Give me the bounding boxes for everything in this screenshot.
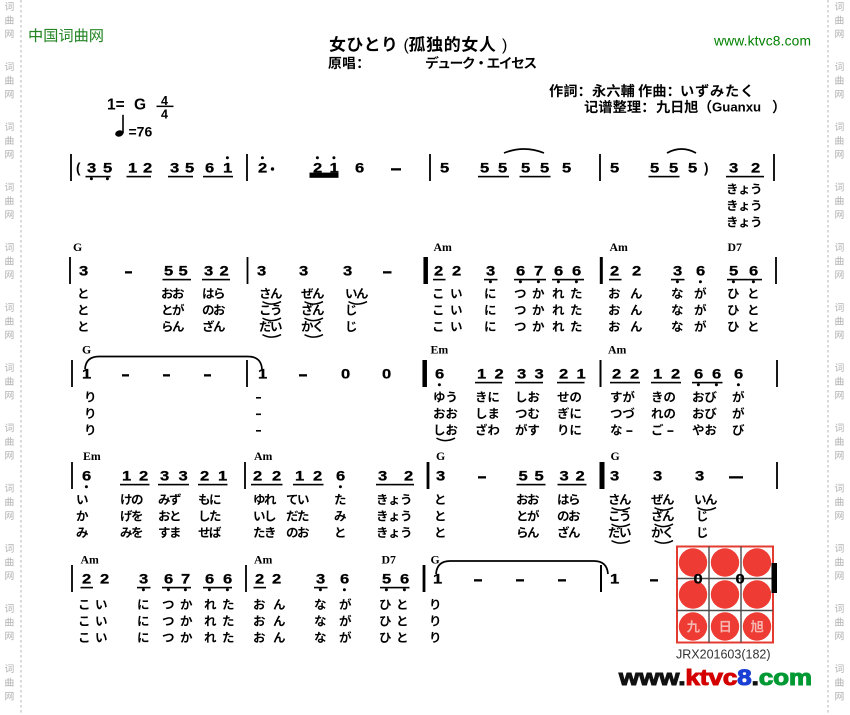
svg-text:3: 3 — [729, 160, 738, 176]
svg-text:(: ( — [76, 161, 81, 176]
svg-text:2: 2 — [200, 468, 209, 484]
svg-text:G: G — [82, 343, 91, 357]
svg-text:3: 3 — [560, 468, 569, 484]
svg-text:5: 5 — [540, 160, 549, 176]
svg-text:3: 3 — [87, 160, 96, 176]
svg-text:0: 0 — [736, 571, 745, 587]
svg-text:Am: Am — [81, 553, 100, 567]
svg-text:6: 6 — [340, 571, 349, 587]
svg-text:G: G — [436, 449, 445, 463]
svg-text:Am: Am — [254, 449, 273, 463]
svg-text:D7: D7 — [382, 553, 397, 567]
svg-text:G: G — [431, 553, 440, 567]
svg-text:3: 3 — [316, 571, 325, 587]
svg-text:7: 7 — [534, 263, 543, 279]
svg-text:1: 1 — [610, 571, 619, 587]
svg-text:2: 2 — [452, 263, 461, 279]
svg-text:Em: Em — [83, 449, 101, 463]
svg-text:5: 5 — [185, 160, 194, 176]
svg-text:www.ktvc8.com: www.ktvc8.com — [713, 34, 811, 49]
svg-text:2: 2 — [632, 263, 641, 279]
svg-text:2: 2 — [751, 160, 760, 176]
svg-text:6: 6 — [205, 571, 214, 587]
svg-text:3: 3 — [179, 468, 188, 484]
svg-text:=76: =76 — [129, 124, 153, 140]
svg-text:6: 6 — [712, 366, 721, 382]
svg-text:5: 5 — [382, 571, 391, 587]
svg-text:3: 3 — [257, 263, 266, 279]
svg-text:5: 5 — [498, 160, 507, 176]
svg-text:1: 1 — [258, 366, 267, 382]
svg-text:5: 5 — [480, 160, 489, 176]
svg-text:2: 2 — [612, 366, 621, 382]
svg-text:3: 3 — [673, 263, 682, 279]
svg-text:G: G — [134, 96, 146, 113]
svg-text:5: 5 — [610, 160, 619, 176]
svg-text:1: 1 — [128, 160, 137, 176]
svg-text:1: 1 — [122, 468, 131, 484]
svg-text:2: 2 — [255, 571, 264, 587]
svg-text:3: 3 — [695, 468, 704, 484]
svg-text:(: ( — [404, 37, 410, 54]
svg-text:Am: Am — [434, 240, 453, 254]
svg-text:www.ktvc8.com: www.ktvc8.com — [618, 665, 812, 690]
svg-text:6: 6 — [516, 263, 525, 279]
svg-text:2: 2 — [434, 263, 443, 279]
svg-text:1: 1 — [477, 366, 486, 382]
svg-text:6: 6 — [223, 571, 232, 587]
svg-text:3: 3 — [535, 366, 544, 382]
svg-text:5: 5 — [535, 468, 544, 484]
svg-text:3: 3 — [653, 468, 662, 484]
svg-text:5: 5 — [179, 263, 188, 279]
svg-text:2: 2 — [313, 468, 322, 484]
svg-text:2: 2 — [100, 571, 109, 587]
svg-text:2: 2 — [630, 366, 639, 382]
svg-text:5: 5 — [164, 263, 173, 279]
svg-text:3: 3 — [378, 468, 387, 484]
svg-text:2: 2 — [559, 366, 568, 382]
svg-text:1: 1 — [218, 468, 227, 484]
svg-text:5: 5 — [519, 468, 528, 484]
svg-text:JRX201603(182): JRX201603(182) — [676, 648, 771, 662]
svg-text:Em: Em — [431, 343, 449, 357]
svg-text:6: 6 — [696, 263, 705, 279]
svg-text:6: 6 — [554, 263, 563, 279]
svg-text:3: 3 — [79, 263, 88, 279]
svg-text:0: 0 — [382, 366, 391, 382]
svg-text:5: 5 — [729, 263, 738, 279]
svg-text:2: 2 — [404, 468, 413, 484]
svg-text:6: 6 — [734, 366, 743, 382]
svg-text:3: 3 — [139, 571, 148, 587]
svg-text:7: 7 — [181, 571, 190, 587]
svg-text:6: 6 — [400, 571, 409, 587]
svg-text:Am: Am — [610, 240, 629, 254]
svg-text:5: 5 — [688, 160, 697, 176]
svg-text:0: 0 — [694, 571, 703, 587]
svg-text:2: 2 — [220, 263, 229, 279]
svg-text:4: 4 — [161, 108, 168, 122]
svg-text:): ) — [502, 37, 507, 54]
svg-text:2: 2 — [139, 468, 148, 484]
svg-text:5: 5 — [562, 160, 571, 176]
svg-text:2: 2 — [272, 468, 281, 484]
svg-text:6: 6 — [572, 263, 581, 279]
svg-text:3: 3 — [160, 468, 169, 484]
svg-text:6: 6 — [749, 263, 758, 279]
svg-text:2: 2 — [576, 468, 585, 484]
svg-text:1: 1 — [577, 366, 586, 382]
svg-text:3: 3 — [299, 263, 308, 279]
svg-text:3: 3 — [343, 263, 352, 279]
svg-text:5: 5 — [440, 160, 449, 176]
svg-text:2: 2 — [272, 571, 281, 587]
svg-text:2: 2 — [258, 160, 267, 176]
svg-text:5: 5 — [103, 160, 112, 176]
svg-text:2: 2 — [253, 468, 262, 484]
svg-text:6: 6 — [435, 366, 444, 382]
svg-text:3: 3 — [610, 468, 619, 484]
svg-text:6: 6 — [355, 160, 364, 176]
svg-text:3: 3 — [517, 366, 526, 382]
svg-text:Guanxu: Guanxu — [712, 100, 761, 115]
svg-text:D7: D7 — [728, 240, 743, 254]
svg-text:6: 6 — [694, 366, 703, 382]
svg-text:6: 6 — [82, 468, 91, 484]
svg-text:): ) — [704, 161, 709, 176]
svg-text:G: G — [611, 449, 620, 463]
svg-text:5: 5 — [669, 160, 678, 176]
svg-text:6: 6 — [164, 571, 173, 587]
svg-text:1: 1 — [433, 571, 442, 587]
svg-text:1: 1 — [223, 160, 232, 176]
svg-text:2: 2 — [495, 366, 504, 382]
svg-text:5: 5 — [521, 160, 530, 176]
svg-text:3: 3 — [486, 263, 495, 279]
svg-text:1=: 1= — [107, 96, 125, 113]
svg-text:3: 3 — [170, 160, 179, 176]
svg-text:3: 3 — [204, 263, 213, 279]
svg-text:2: 2 — [610, 263, 619, 279]
svg-text:Am: Am — [608, 343, 627, 357]
svg-text:5: 5 — [650, 160, 659, 176]
svg-text:1: 1 — [653, 366, 662, 382]
svg-text:2: 2 — [82, 571, 91, 587]
svg-text:2: 2 — [143, 160, 152, 176]
svg-text:0: 0 — [341, 366, 350, 382]
svg-text:G: G — [73, 240, 82, 254]
svg-text:1: 1 — [295, 468, 304, 484]
svg-text:1: 1 — [82, 366, 91, 382]
svg-text:6: 6 — [205, 160, 214, 176]
svg-text:6: 6 — [336, 468, 345, 484]
svg-text:2: 2 — [671, 366, 680, 382]
svg-text:3: 3 — [436, 468, 445, 484]
svg-text:Am: Am — [254, 553, 273, 567]
